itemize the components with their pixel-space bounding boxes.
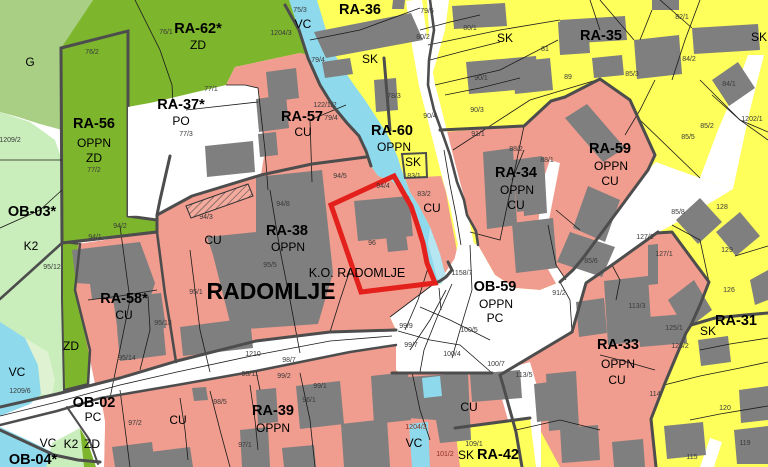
svg-text:85/5: 85/5 [681, 134, 695, 141]
svg-text:1202/1: 1202/1 [741, 116, 763, 123]
svg-text:75/3: 75/3 [293, 7, 307, 14]
svg-text:ZD: ZD [86, 151, 102, 165]
svg-text:95/5: 95/5 [263, 262, 277, 269]
svg-text:99/2: 99/2 [277, 373, 291, 380]
svg-text:K2: K2 [64, 437, 79, 451]
svg-text:83/1: 83/1 [407, 173, 421, 180]
svg-text:82/1: 82/1 [675, 14, 689, 21]
svg-text:CU: CU [460, 400, 477, 414]
svg-text:113/3: 113/3 [629, 303, 646, 310]
svg-text:PO: PO [172, 114, 189, 128]
svg-text:129: 129 [721, 247, 733, 254]
svg-text:RADOMLJE: RADOMLJE [206, 278, 335, 304]
svg-text:85/6: 85/6 [584, 258, 598, 265]
svg-text:RA-58*: RA-58* [100, 291, 148, 307]
svg-text:OPPN: OPPN [256, 421, 290, 435]
svg-text:95/14: 95/14 [118, 355, 136, 362]
svg-text:OB-59: OB-59 [474, 279, 517, 295]
svg-text:RA-33: RA-33 [597, 337, 639, 353]
svg-text:OPPN: OPPN [77, 136, 111, 150]
svg-text:94/3: 94/3 [199, 214, 213, 221]
svg-text:G: G [25, 55, 34, 69]
svg-text:OB-03*: OB-03* [8, 204, 57, 220]
svg-text:90/3: 90/3 [470, 107, 484, 114]
svg-text:SK: SK [362, 52, 378, 66]
svg-text:88/2: 88/2 [509, 146, 523, 153]
svg-text:90/1: 90/1 [474, 75, 488, 82]
svg-text:90/4: 90/4 [423, 113, 437, 120]
svg-text:98/7: 98/7 [282, 357, 296, 364]
svg-text:127/2: 127/2 [636, 234, 654, 241]
svg-text:83/2: 83/2 [417, 191, 431, 198]
svg-text:91/2: 91/2 [552, 290, 566, 297]
svg-text:97/1: 97/1 [238, 442, 252, 449]
svg-text:CU: CU [169, 413, 186, 427]
svg-text:79/4: 79/4 [324, 115, 338, 122]
svg-text:94/1: 94/1 [88, 234, 102, 241]
svg-text:PC: PC [487, 311, 504, 325]
svg-text:CU: CU [601, 174, 618, 188]
svg-text:RA-39: RA-39 [252, 403, 294, 419]
svg-text:95/12: 95/12 [43, 264, 61, 271]
svg-text:PC: PC [85, 410, 102, 424]
svg-text:VC: VC [40, 436, 57, 450]
svg-text:114: 114 [649, 391, 660, 398]
svg-text:CU: CU [423, 201, 440, 215]
svg-text:98/11: 98/11 [242, 371, 259, 378]
svg-text:CU: CU [115, 308, 132, 322]
svg-text:89: 89 [564, 74, 572, 81]
svg-text:CU: CU [507, 198, 524, 212]
svg-text:RA-34: RA-34 [495, 165, 537, 181]
svg-text:OPPN: OPPN [479, 297, 513, 311]
svg-text:100/7: 100/7 [487, 361, 505, 368]
svg-text:SK: SK [751, 30, 767, 44]
svg-text:SK: SK [497, 31, 513, 45]
svg-text:77/1: 77/1 [204, 86, 218, 93]
svg-text:1210: 1210 [245, 351, 261, 358]
svg-text:78/3: 78/3 [387, 93, 401, 100]
svg-text:77/3: 77/3 [179, 131, 193, 138]
svg-text:RA-56: RA-56 [73, 116, 115, 132]
svg-text:RA-38: RA-38 [266, 223, 308, 239]
svg-text:99/9: 99/9 [399, 323, 413, 330]
svg-text:OPPN: OPPN [601, 357, 635, 371]
svg-text:RA-62*: RA-62* [174, 21, 222, 37]
svg-text:81: 81 [541, 46, 549, 53]
svg-text:VC: VC [295, 17, 312, 31]
svg-text:SK: SK [700, 324, 716, 338]
svg-text:122/1/2: 122/1/2 [313, 102, 336, 109]
svg-text:RA-59: RA-59 [589, 141, 631, 157]
svg-text:RA-60: RA-60 [371, 123, 413, 139]
svg-text:79/4: 79/4 [311, 57, 325, 64]
svg-text:OPPN: OPPN [500, 183, 534, 197]
svg-text:1158/7: 1158/7 [452, 270, 473, 277]
svg-text:RA-35: RA-35 [580, 28, 622, 44]
svg-text:OPPN: OPPN [271, 240, 305, 254]
svg-text:OPPN: OPPN [377, 140, 411, 154]
svg-text:85/8: 85/8 [671, 209, 685, 216]
svg-text:109/1: 109/1 [465, 441, 483, 448]
svg-text:VC: VC [406, 436, 423, 450]
svg-text:ZD: ZD [190, 38, 206, 52]
svg-text:79/5: 79/5 [420, 8, 434, 15]
svg-text:127/1: 127/1 [655, 251, 673, 258]
svg-text:OB-04*: OB-04* [9, 452, 58, 467]
svg-text:80/2: 80/2 [416, 34, 430, 41]
svg-text:113/5: 113/5 [516, 372, 533, 379]
svg-text:88/1: 88/1 [540, 157, 554, 164]
svg-text:CU: CU [204, 233, 221, 247]
svg-text:94/8: 94/8 [276, 201, 290, 208]
svg-text:CU: CU [608, 373, 625, 387]
svg-text:76/2: 76/2 [85, 49, 99, 56]
svg-text:100/4: 100/4 [443, 351, 461, 358]
svg-text:OPPN: OPPN [594, 159, 628, 173]
svg-text:94/2: 94/2 [113, 223, 127, 230]
svg-text:115: 115 [686, 454, 697, 461]
svg-text:80/1: 80/1 [463, 25, 477, 32]
svg-text:RA-36: RA-36 [339, 2, 381, 18]
svg-text:95/1: 95/1 [189, 289, 203, 296]
svg-text:97/2: 97/2 [128, 420, 142, 427]
svg-text:ZD: ZD [84, 437, 100, 451]
svg-text:VC: VC [9, 365, 26, 379]
svg-text:101/2: 101/2 [436, 451, 454, 458]
svg-text:94/4: 94/4 [376, 183, 390, 190]
svg-text:CU: CU [294, 125, 311, 139]
svg-text:85/2: 85/2 [700, 123, 714, 130]
svg-text:ZD: ZD [63, 339, 79, 353]
svg-text:SK: SK [458, 448, 474, 462]
svg-text:96: 96 [368, 240, 376, 247]
svg-text:91/1: 91/1 [471, 131, 485, 138]
svg-text:1209/2: 1209/2 [0, 137, 21, 144]
svg-text:99/1: 99/1 [313, 383, 327, 390]
svg-text:SK: SK [405, 155, 421, 169]
svg-text:99/7: 99/7 [404, 342, 418, 349]
svg-text:RA-42: RA-42 [477, 447, 519, 463]
svg-text:125/2: 125/2 [671, 343, 689, 350]
svg-text:K2: K2 [24, 239, 39, 253]
svg-text:84/1: 84/1 [722, 81, 736, 88]
svg-text:RA-37*: RA-37* [157, 97, 205, 113]
svg-text:125/1: 125/1 [665, 325, 683, 332]
svg-text:95/13: 95/13 [154, 320, 172, 327]
svg-text:119: 119 [739, 440, 750, 447]
svg-text:128: 128 [716, 204, 728, 211]
svg-text:96/1: 96/1 [302, 397, 316, 404]
svg-text:94/5: 94/5 [333, 173, 347, 180]
svg-text:84/2: 84/2 [682, 56, 696, 63]
svg-text:1204/3: 1204/3 [270, 30, 292, 37]
svg-text:77/2: 77/2 [87, 167, 101, 174]
svg-text:120: 120 [719, 405, 731, 412]
svg-text:RA-31: RA-31 [715, 313, 757, 329]
svg-text:100/5: 100/5 [460, 327, 478, 334]
svg-text:76/1: 76/1 [159, 29, 173, 36]
svg-text:RA-57: RA-57 [281, 109, 323, 125]
svg-text:126: 126 [723, 287, 735, 294]
svg-text:OB-02: OB-02 [73, 395, 116, 411]
svg-text:85/3: 85/3 [625, 71, 639, 78]
svg-text:1204/3: 1204/3 [405, 424, 427, 431]
svg-text:1209/6: 1209/6 [9, 388, 31, 395]
svg-text:98/5: 98/5 [213, 399, 227, 406]
